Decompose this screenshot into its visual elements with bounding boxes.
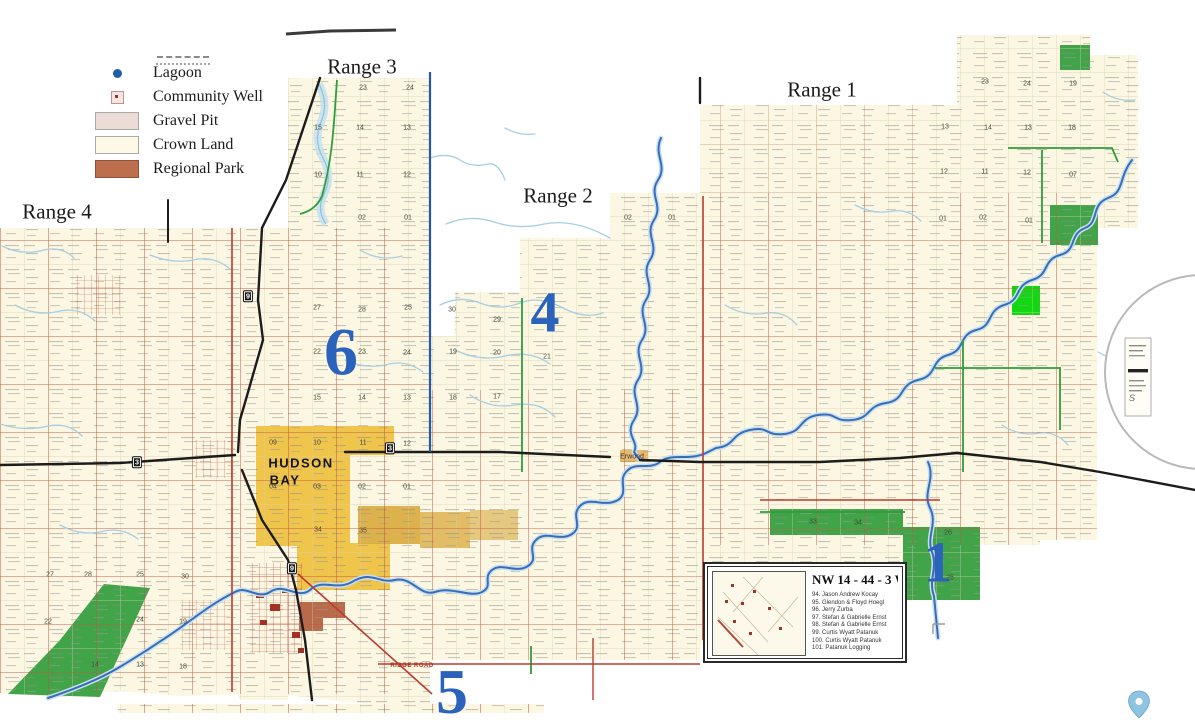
legend-item-crown-land: Crown Land (95, 136, 330, 154)
owner-entry: 99. Curtis Wyatt Patanuk (812, 630, 898, 638)
legend-item-community-well: Community Well (95, 88, 330, 106)
legend-item-regional-park: Regional Park (95, 160, 330, 178)
legend-label: Community Well (153, 88, 263, 106)
owner-entry: 95. Glendon & Floyd Hoegl (812, 600, 898, 608)
scanned-map-page: Range 3Range 1Range 2Range 46415HUDSONBA… (0, 0, 1195, 720)
owner-entry: 97. Stefan & Gabrielle Ernst (812, 615, 898, 623)
map-legend: Lagoon Community Well Gravel Pit Crown L… (95, 56, 330, 184)
owner-entry: 100. Curtis Wyatt Patanuk (812, 638, 898, 646)
inset-minimap (712, 571, 806, 656)
legend-item-lagoon: Lagoon (95, 64, 330, 82)
owner-entry: 101. Patanuk Logging (812, 645, 898, 653)
gravel-pit-swatch (95, 112, 139, 130)
inset-title: NW 14 - 44 - 3 W2 (812, 572, 898, 588)
location-pin-icon[interactable] (1129, 691, 1150, 718)
legend-label: Regional Park (153, 160, 244, 178)
legend-label: Crown Land (153, 136, 233, 154)
red-road-grid (0, 105, 1097, 713)
owner-entry: 94. Jason Andrew Kocay (812, 592, 898, 600)
legend-item-gravel-pit: Gravel Pit (95, 112, 330, 130)
cutoff-legend-item (157, 56, 209, 58)
legend-label: Lagoon (153, 64, 202, 82)
lagoon-dot-icon (95, 69, 139, 78)
owner-entry: 96. Jerry Zurba (812, 607, 898, 615)
ownership-inset-box: NW 14 - 44 - 3 W2 94. Jason Andrew Kocay… (703, 562, 907, 663)
owner-entry: 98. Stefan & Gabrielle Ernst (812, 622, 898, 630)
magnifier-inset-circle (1105, 275, 1195, 469)
legend-label: Gravel Pit (153, 112, 218, 130)
well-square-icon (95, 91, 139, 104)
regional-park-swatch (95, 160, 139, 178)
crown-land-swatch (95, 136, 139, 154)
